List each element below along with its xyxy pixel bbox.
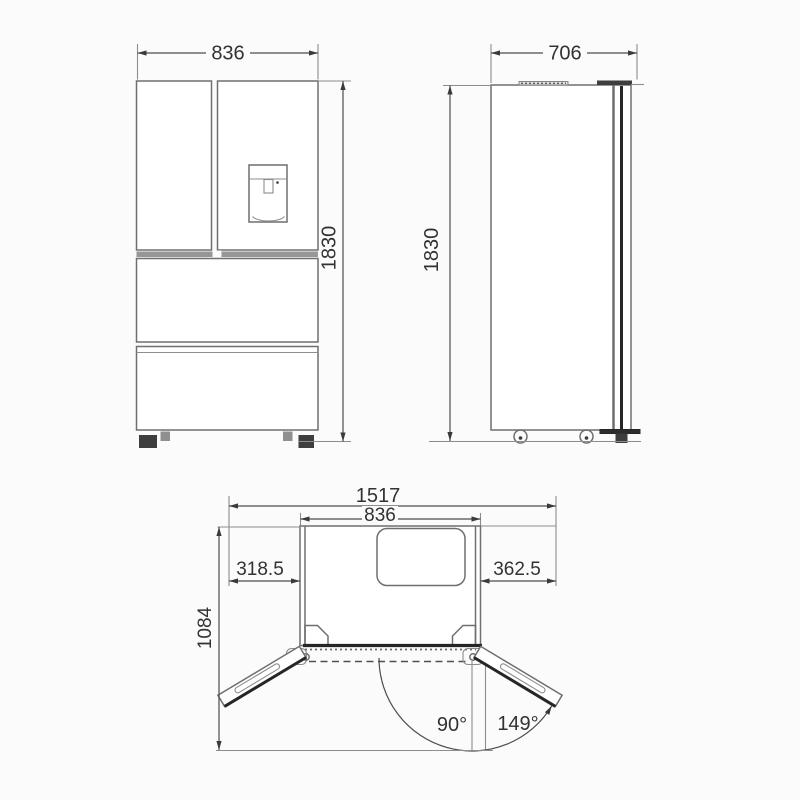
front-view: 836 1830 bbox=[137, 43, 352, 449]
side-cabinet bbox=[491, 85, 613, 430]
top-cabinet-width-label: 836 bbox=[364, 505, 396, 526]
front-feet bbox=[139, 432, 314, 449]
arrow-down bbox=[447, 432, 452, 441]
front-left-door bbox=[137, 81, 212, 250]
top-right-offset-dimension: 362.5 bbox=[481, 526, 557, 584]
side-top-hinge bbox=[597, 81, 632, 86]
top-view: 1517 836 318.5 362.5 bbox=[195, 485, 562, 751]
arrow-up bbox=[447, 86, 452, 95]
top-depth-label: 1084 bbox=[195, 606, 216, 649]
side-height-label: 1830 bbox=[421, 228, 443, 273]
top-left-offset-dimension: 318.5 bbox=[229, 559, 300, 584]
door-90-position-lines bbox=[472, 661, 486, 751]
front-foot-right-inner bbox=[283, 432, 293, 442]
diagram-page: 836 1830 bbox=[0, 0, 800, 800]
side-view: 706 1830 bbox=[421, 43, 644, 444]
bottom-drawer bbox=[137, 347, 319, 431]
right-door-open bbox=[474, 646, 562, 706]
arrow-left bbox=[138, 50, 147, 55]
side-depth-dimension: 706 bbox=[491, 43, 644, 85]
arrow-right bbox=[628, 50, 637, 55]
side-height-dimension: 1830 bbox=[421, 86, 490, 442]
front-height-label: 1830 bbox=[319, 226, 341, 271]
arrow-right bbox=[291, 578, 300, 583]
dispenser-button bbox=[276, 181, 279, 184]
side-door-bottom bbox=[600, 430, 640, 434]
arrow-right bbox=[547, 578, 556, 583]
arrow-left bbox=[491, 50, 500, 55]
arrow-left bbox=[301, 516, 310, 521]
top-cabinet-width-dimension: 836 bbox=[301, 505, 481, 526]
arrow-right bbox=[472, 516, 481, 521]
side-depth-label: 706 bbox=[548, 43, 581, 65]
arrow-right bbox=[547, 503, 556, 508]
arrow-down bbox=[340, 433, 345, 442]
top-left-offset-label: 318.5 bbox=[236, 559, 284, 580]
arrow-up bbox=[340, 81, 345, 90]
right-door-face bbox=[474, 658, 555, 707]
front-foot-left-inner bbox=[161, 432, 171, 442]
top-right-offset-label: 362.5 bbox=[493, 559, 541, 580]
refrigerator-dimension-diagram: 836 1830 bbox=[0, 0, 800, 800]
front-trim-band bbox=[137, 252, 319, 258]
arrow-down bbox=[216, 741, 221, 750]
door-angle-90-label: 90° bbox=[437, 714, 467, 736]
arrow-left bbox=[229, 503, 238, 508]
front-foot-left-outer bbox=[139, 435, 157, 448]
door-swing-arc bbox=[379, 658, 552, 751]
arrow-up bbox=[216, 527, 221, 536]
top-overall-width-label: 1517 bbox=[356, 485, 401, 507]
arrow-right bbox=[309, 50, 318, 55]
arrow-left bbox=[481, 578, 490, 583]
left-door-face bbox=[225, 658, 306, 707]
front-width-label: 836 bbox=[211, 43, 244, 65]
front-width-dimension: 836 bbox=[138, 43, 319, 80]
middle-drawer bbox=[137, 259, 319, 343]
left-door-open bbox=[218, 646, 306, 706]
door-angle-149-label: 149° bbox=[497, 713, 538, 735]
